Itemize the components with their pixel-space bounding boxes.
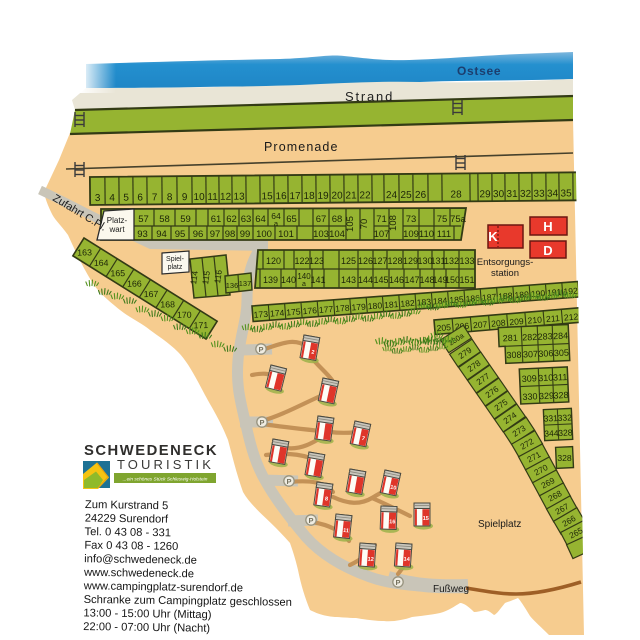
svg-text:Entsorgungs-: Entsorgungs- xyxy=(477,257,534,268)
svg-text:20: 20 xyxy=(331,191,343,202)
svg-text:332: 332 xyxy=(557,412,572,423)
svg-text:Tel. 0 43 08 - 331: Tel. 0 43 08 - 331 xyxy=(84,526,171,539)
svg-text:147: 147 xyxy=(404,275,419,285)
svg-text:11: 11 xyxy=(207,192,218,203)
svg-text:178: 178 xyxy=(335,303,350,314)
svg-text:120: 120 xyxy=(266,256,281,266)
svg-text:63: 63 xyxy=(241,214,252,225)
svg-text:11: 11 xyxy=(343,528,349,535)
svg-text:30: 30 xyxy=(493,189,505,200)
svg-text:146: 146 xyxy=(389,275,404,285)
svg-text:platz: platz xyxy=(168,264,183,271)
svg-text:info@schwedeneck.de: info@schwedeneck.de xyxy=(84,553,197,567)
svg-text:24: 24 xyxy=(386,190,398,201)
svg-text:212: 212 xyxy=(564,311,579,322)
svg-text:57: 57 xyxy=(138,214,149,225)
svg-text:Platz-: Platz- xyxy=(107,216,128,225)
svg-text:305: 305 xyxy=(554,348,569,359)
svg-text:...ein schönes Stück Schleswig: ...ein schönes Stück Schleswig-Holstein xyxy=(123,477,208,483)
svg-text:29: 29 xyxy=(479,189,491,200)
svg-text:182: 182 xyxy=(400,298,415,309)
svg-text:308: 308 xyxy=(506,350,521,361)
svg-text:73: 73 xyxy=(406,214,417,225)
svg-text:22: 22 xyxy=(359,190,371,201)
svg-text:33: 33 xyxy=(533,189,545,200)
svg-text:Ostsee: Ostsee xyxy=(457,64,501,78)
svg-text:101: 101 xyxy=(278,229,294,240)
svg-text:65: 65 xyxy=(286,214,297,225)
svg-text:7: 7 xyxy=(152,192,158,203)
svg-text:307: 307 xyxy=(523,349,538,360)
svg-text:94: 94 xyxy=(156,229,167,240)
svg-text:105: 105 xyxy=(345,216,356,232)
svg-text:58: 58 xyxy=(159,214,170,225)
svg-text:116: 116 xyxy=(212,269,224,284)
svg-text:179: 179 xyxy=(351,301,366,312)
svg-text:140: 140 xyxy=(297,272,311,281)
svg-text:16: 16 xyxy=(389,519,395,525)
svg-text:211: 211 xyxy=(546,313,561,324)
svg-text:140: 140 xyxy=(281,275,296,285)
svg-text:a: a xyxy=(302,281,306,288)
svg-text:310: 310 xyxy=(538,373,553,384)
svg-text:3: 3 xyxy=(95,193,101,204)
svg-text:96: 96 xyxy=(193,229,204,240)
svg-text:62: 62 xyxy=(226,214,237,225)
svg-text:K: K xyxy=(488,229,498,244)
svg-text:328: 328 xyxy=(558,427,573,438)
svg-text:125: 125 xyxy=(341,256,356,266)
svg-text:75: 75 xyxy=(437,214,448,225)
svg-text:136: 136 xyxy=(226,281,239,290)
svg-text:205: 205 xyxy=(436,322,451,333)
svg-text:wart: wart xyxy=(108,225,125,234)
svg-text:309: 309 xyxy=(521,373,536,384)
svg-text:209: 209 xyxy=(509,316,524,327)
svg-text:328: 328 xyxy=(553,390,568,401)
svg-text:328: 328 xyxy=(557,453,572,463)
svg-text:34: 34 xyxy=(547,189,559,200)
svg-text:D: D xyxy=(543,243,552,258)
svg-text:18: 18 xyxy=(303,191,315,202)
svg-text:21: 21 xyxy=(345,190,357,201)
svg-text:Promenade: Promenade xyxy=(264,140,339,154)
svg-text:139: 139 xyxy=(263,275,278,285)
svg-text:Fax 0 43 08 - 1260: Fax 0 43 08 - 1260 xyxy=(84,540,178,553)
svg-text:TOURISTIK: TOURISTIK xyxy=(117,457,214,472)
svg-text:6: 6 xyxy=(137,192,143,203)
svg-text:306: 306 xyxy=(538,348,553,359)
svg-text:Strand: Strand xyxy=(345,89,394,104)
svg-text:10: 10 xyxy=(193,192,205,203)
svg-text:13:00 - 15:00 Uhr (Mittag): 13:00 - 15:00 Uhr (Mittag) xyxy=(83,607,212,621)
svg-text:168: 168 xyxy=(160,299,175,309)
svg-text:283: 283 xyxy=(537,331,552,342)
svg-text:164: 164 xyxy=(94,258,109,268)
svg-text:181: 181 xyxy=(384,299,399,310)
svg-text:71: 71 xyxy=(376,214,387,225)
svg-text:207: 207 xyxy=(473,319,488,330)
svg-text:12: 12 xyxy=(220,192,232,203)
svg-text:68: 68 xyxy=(332,214,343,225)
svg-text:311: 311 xyxy=(553,372,568,383)
svg-text:70: 70 xyxy=(359,219,370,230)
svg-text:103: 103 xyxy=(313,229,329,240)
svg-text:167: 167 xyxy=(144,289,159,299)
svg-text:93: 93 xyxy=(137,229,148,240)
svg-text:331: 331 xyxy=(543,413,558,424)
svg-text:122: 122 xyxy=(294,256,309,266)
svg-text:Fußweg: Fußweg xyxy=(433,584,469,595)
svg-text:61: 61 xyxy=(211,214,222,225)
svg-text:281: 281 xyxy=(502,333,517,344)
svg-text:24229 Surendorf: 24229 Surendorf xyxy=(85,512,169,525)
svg-text:Spielplatz: Spielplatz xyxy=(478,519,521,530)
svg-text:15: 15 xyxy=(261,191,273,202)
svg-text:station: station xyxy=(491,268,519,279)
svg-text:H: H xyxy=(543,219,552,234)
svg-text:170: 170 xyxy=(177,310,192,320)
svg-text:127: 127 xyxy=(372,256,387,266)
svg-text:115: 115 xyxy=(200,270,212,285)
svg-text:35: 35 xyxy=(560,188,572,199)
svg-text:22:00 - 07:00 Uhr (Nacht): 22:00 - 07:00 Uhr (Nacht) xyxy=(83,621,210,635)
svg-text:Schranke zum Campingplatz gesc: Schranke zum Campingplatz geschlossen xyxy=(84,594,292,609)
svg-text:15: 15 xyxy=(423,516,429,522)
svg-text:165: 165 xyxy=(110,268,125,278)
svg-text:19: 19 xyxy=(317,191,329,202)
svg-text:95: 95 xyxy=(175,229,186,240)
svg-text:28: 28 xyxy=(450,189,462,200)
svg-text:109: 109 xyxy=(403,229,419,240)
svg-text:137: 137 xyxy=(239,279,252,288)
svg-text:100: 100 xyxy=(256,229,272,240)
svg-text:144: 144 xyxy=(358,275,373,285)
svg-text:5: 5 xyxy=(123,193,129,204)
svg-text:126: 126 xyxy=(358,256,373,266)
svg-text:26: 26 xyxy=(415,190,427,201)
svg-text:176: 176 xyxy=(302,305,317,316)
svg-text:210: 210 xyxy=(527,314,542,325)
svg-text:330: 330 xyxy=(522,391,537,402)
svg-text:32: 32 xyxy=(520,189,532,200)
svg-text:123: 123 xyxy=(309,256,324,266)
svg-text:175: 175 xyxy=(286,306,301,317)
svg-text:143: 143 xyxy=(341,275,356,285)
svg-text:16: 16 xyxy=(275,191,287,202)
svg-text:67: 67 xyxy=(316,214,327,225)
svg-text:132: 132 xyxy=(444,256,459,266)
svg-text:133: 133 xyxy=(459,256,474,266)
svg-text:180: 180 xyxy=(367,300,382,311)
svg-text:284: 284 xyxy=(553,331,568,342)
svg-text:Zum Kurstrand 5: Zum Kurstrand 5 xyxy=(85,499,168,512)
svg-text:151: 151 xyxy=(459,275,474,285)
svg-text:64: 64 xyxy=(255,214,266,225)
svg-text:www.schwedeneck.de: www.schwedeneck.de xyxy=(83,567,194,581)
svg-text:98: 98 xyxy=(225,229,236,240)
svg-text:31: 31 xyxy=(506,189,518,200)
svg-text:111: 111 xyxy=(437,229,451,240)
svg-text:Spiel-: Spiel- xyxy=(166,256,185,263)
svg-text:177: 177 xyxy=(319,304,334,315)
svg-text:344: 344 xyxy=(544,428,559,439)
svg-text:104: 104 xyxy=(329,229,345,240)
svg-text:108: 108 xyxy=(388,215,399,231)
svg-text:110: 110 xyxy=(419,229,434,240)
svg-text:150: 150 xyxy=(445,275,460,285)
svg-text:75a: 75a xyxy=(450,214,467,225)
svg-text:8: 8 xyxy=(167,192,173,203)
svg-text:97: 97 xyxy=(210,229,221,240)
svg-text:17: 17 xyxy=(289,191,301,202)
svg-text:99: 99 xyxy=(240,229,251,240)
svg-text:www.campingplatz-surendorf.de: www.campingplatz-surendorf.de xyxy=(83,580,243,594)
svg-text:329: 329 xyxy=(539,391,554,402)
svg-text:9: 9 xyxy=(182,192,188,203)
svg-text:13: 13 xyxy=(233,192,245,203)
svg-text:59: 59 xyxy=(180,214,191,225)
svg-text:141: 141 xyxy=(310,275,325,285)
svg-text:114: 114 xyxy=(188,270,200,285)
svg-text:10: 10 xyxy=(390,485,397,492)
svg-text:166: 166 xyxy=(127,279,142,289)
svg-text:171: 171 xyxy=(193,320,208,330)
svg-text:173: 173 xyxy=(253,309,268,320)
svg-text:25: 25 xyxy=(400,190,412,201)
svg-text:282: 282 xyxy=(522,332,537,343)
svg-text:145: 145 xyxy=(373,275,388,285)
svg-text:174: 174 xyxy=(270,308,285,319)
svg-text:4: 4 xyxy=(109,193,115,204)
svg-text:129: 129 xyxy=(403,256,418,266)
svg-text:12: 12 xyxy=(367,557,374,563)
svg-text:163: 163 xyxy=(77,247,92,257)
svg-text:128: 128 xyxy=(387,256,402,266)
